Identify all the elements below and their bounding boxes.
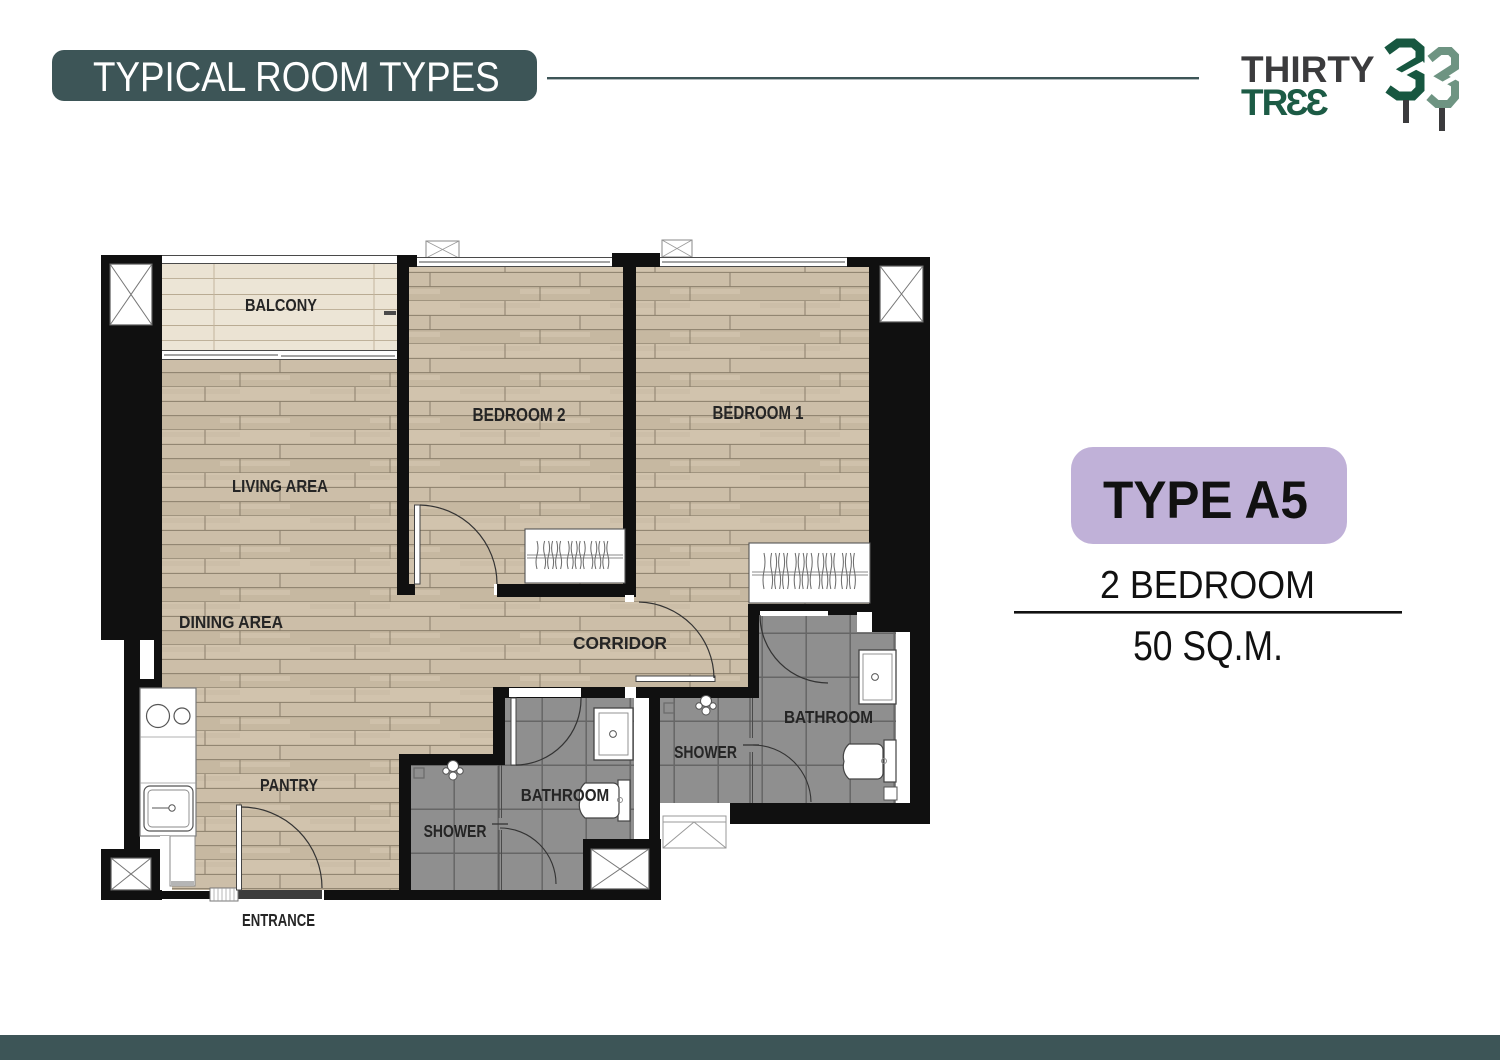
svg-text:SHOWER: SHOWER [674, 744, 737, 763]
svg-text:PANTRY: PANTRY [260, 776, 318, 796]
svg-text:BEDROOM 1: BEDROOM 1 [713, 403, 804, 424]
svg-text:BATHROOM: BATHROOM [521, 786, 609, 805]
svg-text:ENTRANCE: ENTRANCE [242, 911, 315, 930]
svg-text:2 BEDROOM: 2 BEDROOM [1100, 563, 1315, 607]
svg-text:LIVING AREA: LIVING AREA [232, 476, 328, 497]
svg-text:BEDROOM 2: BEDROOM 2 [472, 405, 565, 426]
svg-text:50 SQ.M.: 50 SQ.M. [1133, 623, 1283, 669]
svg-text:CORRIDOR: CORRIDOR [573, 633, 667, 653]
svg-text:SHOWER: SHOWER [424, 823, 487, 842]
svg-text:TRƐƐ: TRƐƐ [1241, 82, 1329, 123]
svg-text:TYPE A5: TYPE A5 [1103, 471, 1308, 530]
svg-text:DINING AREA: DINING AREA [179, 612, 283, 632]
svg-text:BATHROOM: BATHROOM [784, 708, 873, 727]
svg-text:BALCONY: BALCONY [245, 296, 317, 316]
svg-text:TYPICAL ROOM TYPES: TYPICAL ROOM TYPES [93, 54, 500, 101]
